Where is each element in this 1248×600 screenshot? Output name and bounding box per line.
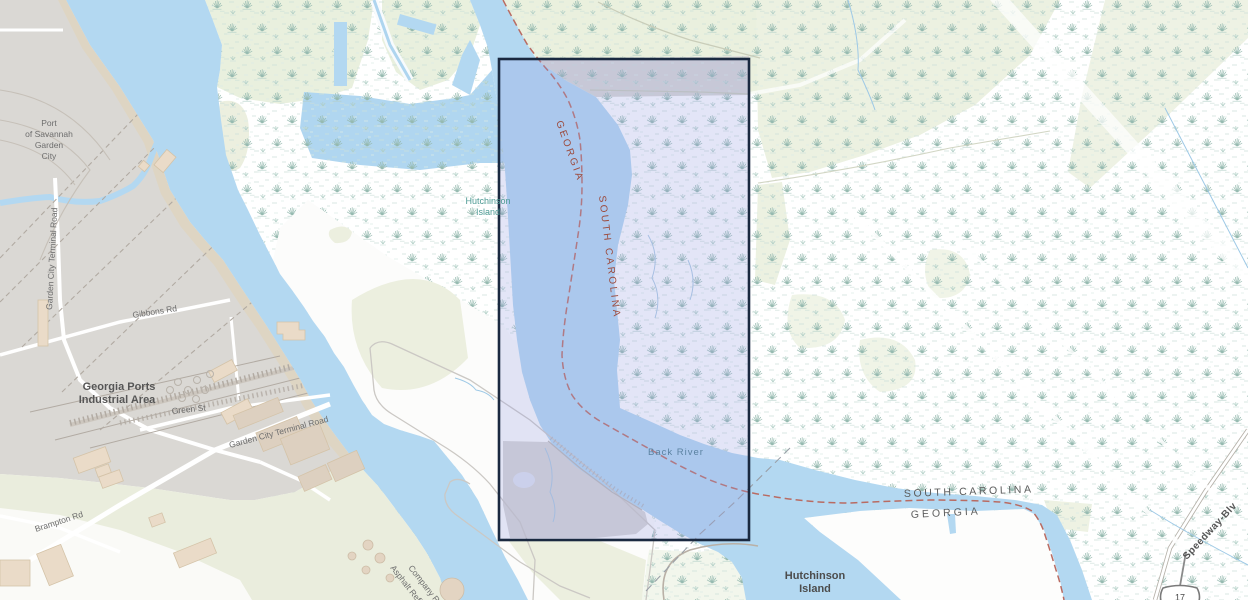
svg-text:Georgia Ports: Georgia Ports bbox=[83, 381, 156, 393]
svg-text:17: 17 bbox=[1175, 593, 1185, 600]
svg-text:Industrial Area: Industrial Area bbox=[79, 394, 156, 406]
svg-text:City: City bbox=[42, 151, 57, 161]
svg-text:of Savannah: of Savannah bbox=[25, 129, 73, 139]
svg-text:Hutchinson: Hutchinson bbox=[785, 570, 846, 582]
svg-text:Island: Island bbox=[799, 583, 831, 595]
svg-text:Port: Port bbox=[41, 118, 57, 128]
svg-text:Garden: Garden bbox=[35, 140, 64, 150]
svg-text:Hutchinson: Hutchinson bbox=[465, 196, 510, 206]
svg-text:Island: Island bbox=[476, 207, 500, 217]
svg-text:Back River: Back River bbox=[648, 447, 704, 458]
